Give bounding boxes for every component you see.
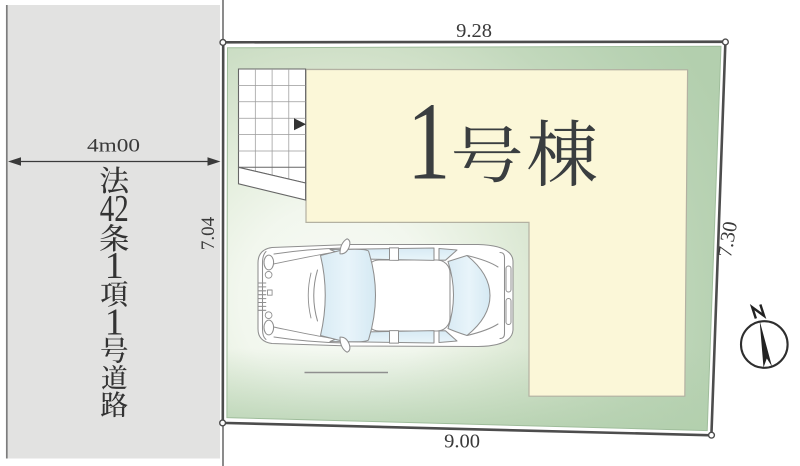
svg-text:1: 1 bbox=[407, 79, 450, 203]
svg-text:1: 1 bbox=[105, 302, 124, 344]
svg-text:4m00: 4m00 bbox=[87, 136, 140, 157]
svg-text:1: 1 bbox=[105, 245, 124, 287]
svg-text:42: 42 bbox=[100, 188, 129, 230]
svg-text:9.00: 9.00 bbox=[444, 431, 480, 453]
svg-text:9.28: 9.28 bbox=[456, 20, 492, 42]
svg-text:7.04: 7.04 bbox=[198, 216, 219, 250]
